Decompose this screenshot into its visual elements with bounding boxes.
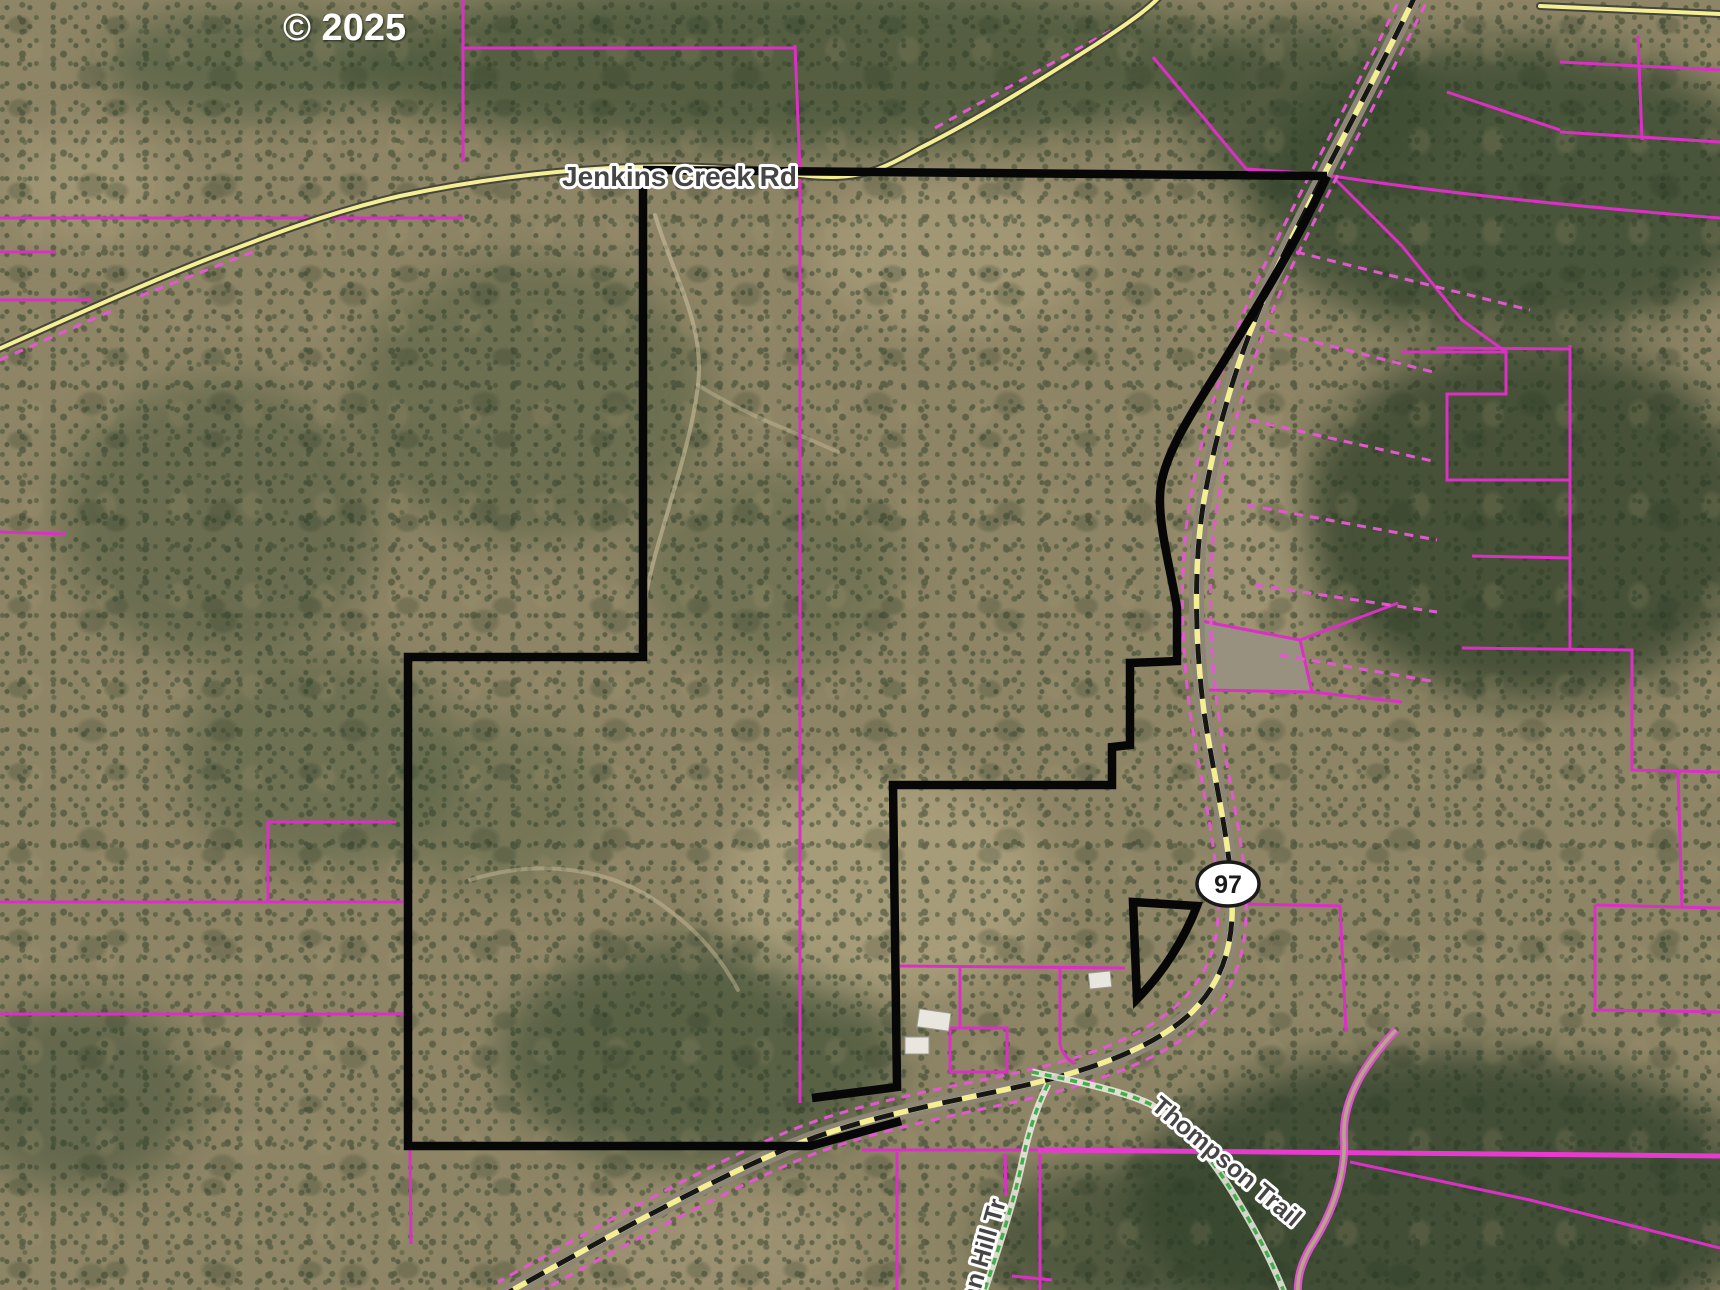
- highway-shield-number: 97: [1214, 871, 1242, 899]
- boundary-triangle-parcel: [1133, 902, 1197, 999]
- dirt-trails: [470, 215, 838, 990]
- parcel-lines-dashed: [0, 30, 1530, 682]
- curvy-pink-road: [1298, 1030, 1396, 1290]
- subject-property-boundary: [408, 170, 1327, 1146]
- trail-label-thompson: Thompson Trail: [1146, 1091, 1307, 1232]
- gis-map-viewport[interactable]: Jenkins Creek Rd Thompson Trail ian Hill…: [0, 0, 1720, 1290]
- road-label-jenkins-creek: Jenkins Creek Rd: [562, 161, 797, 192]
- boundary-west-south-side: [408, 170, 901, 1146]
- highway-97-shield: 97: [1197, 862, 1259, 906]
- parcel-boundary-lines: [0, 0, 1720, 1290]
- map-feature-overlay: Jenkins Creek Rd Thompson Trail ian Hill…: [0, 0, 1720, 1290]
- copyright-watermark: © 2025: [283, 7, 406, 49]
